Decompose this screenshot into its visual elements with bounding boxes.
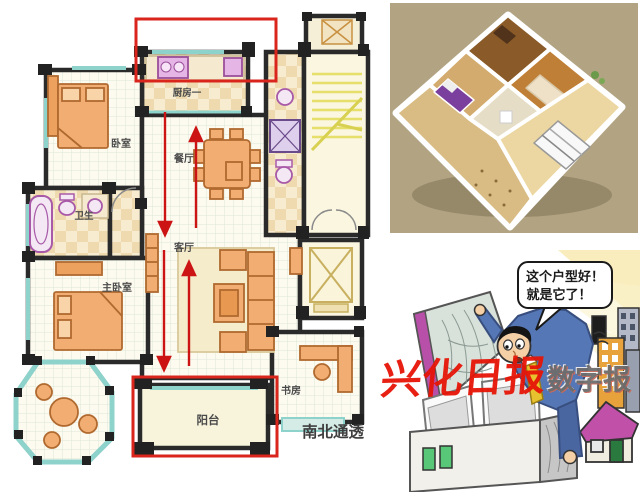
bathtub-icon — [30, 196, 52, 252]
room-label-study: 书房 — [281, 384, 301, 397]
room-label-balcony: 阳台 — [197, 413, 220, 427]
room-label-kitchen: 厨房一 — [173, 87, 202, 99]
sink-icon — [158, 57, 188, 78]
tv-cabinet-icon — [146, 234, 158, 292]
toilet-icon — [59, 194, 75, 215]
room-label-living: 客厅 — [173, 241, 194, 254]
room-label-bedroom: 卧室 — [111, 137, 131, 150]
right-hand — [564, 451, 577, 464]
elevator-icon — [310, 248, 352, 312]
sofa-set-icon — [178, 248, 274, 352]
speech-line1: 这个户型好！ — [526, 269, 604, 285]
speech-line2: 就是它了！ — [526, 287, 591, 303]
room-stairwell — [304, 52, 368, 235]
room-label-dining: 餐厅 — [173, 152, 194, 165]
shower-icon — [270, 120, 300, 152]
cartoon-panel: 这个户型好！ 就是它了！ — [390, 250, 640, 492]
duct-icon — [322, 20, 352, 44]
toilet2-icon — [276, 160, 292, 183]
caption-north-south: 南北通透 — [302, 422, 365, 441]
box-window-icon — [423, 448, 435, 470]
floor-plan-2d: 厨房一 卧室 餐厅 卫生 客厅 主卧室 书房 阳台 南北通透 — [0, 0, 380, 468]
stove-icon — [224, 58, 242, 76]
screenshot-root: 厨房一 卧室 餐厅 卫生 客厅 主卧室 书房 阳台 南北通透 — [0, 0, 640, 492]
box-window-icon — [440, 446, 452, 468]
cabinet-icon — [226, 162, 242, 180]
basin2-icon — [277, 89, 293, 105]
room-label-bathroom: 卫生 — [74, 210, 94, 222]
left-hand — [475, 305, 486, 316]
room-label-master-bedroom: 主卧室 — [102, 281, 132, 294]
radiator-icon — [290, 248, 302, 274]
render-3d-panel — [390, 3, 638, 233]
